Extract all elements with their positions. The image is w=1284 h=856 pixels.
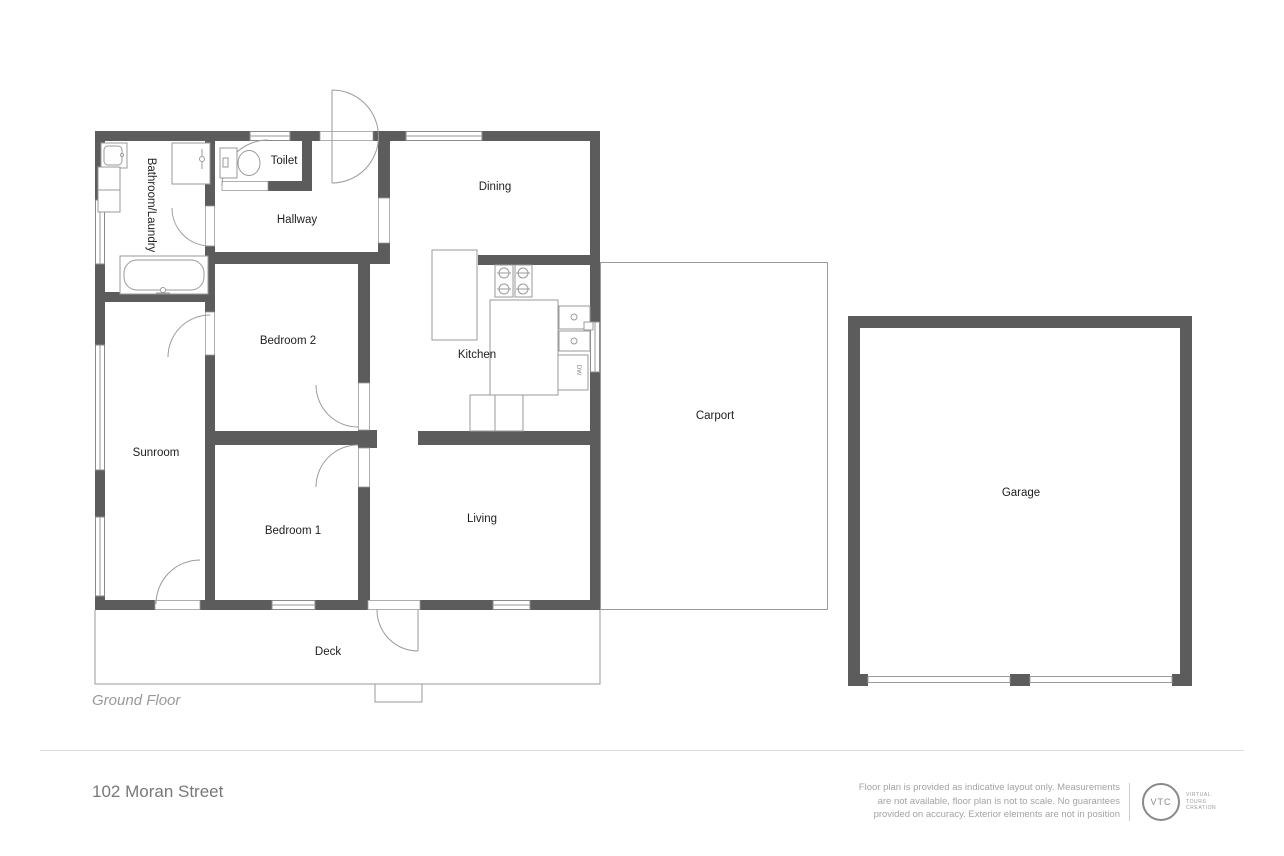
vtc-logo: VTC VIRTUAL TOURS CREATION (1142, 783, 1252, 823)
vtc-logo-name-line-3: CREATION (1186, 805, 1216, 812)
deck-step (375, 684, 422, 702)
toilet-fixture (220, 148, 260, 178)
room-label-bathroom-laundry: Bathroom/Laundry (145, 158, 157, 253)
floor-label: Ground Floor (92, 692, 180, 709)
room-label-living: Living (467, 513, 497, 525)
carport-outline (601, 263, 828, 610)
room-label-hallway: Hallway (277, 214, 317, 226)
shower (172, 143, 210, 184)
garage-walls (848, 316, 1192, 686)
disclaimer-text: Floor plan is provided as indicative lay… (859, 781, 1120, 822)
vtc-logo-circle: VTC (1142, 783, 1180, 821)
bathtub (120, 256, 208, 294)
dishwasher-label: DW (575, 365, 582, 377)
dishwasher: DW (558, 355, 588, 390)
pantry (432, 250, 477, 340)
kitchen-bench (490, 300, 558, 395)
laundry-bench (98, 167, 120, 212)
address-title: 102 Moran Street (92, 782, 223, 802)
garage-door-left (868, 677, 1010, 683)
kitchen-fixtures: DW (432, 250, 593, 431)
floor-plan-drawing: DW (0, 0, 1284, 856)
room-label-bedroom-2: Bedroom 2 (260, 335, 316, 347)
vtc-logo-name: VIRTUAL TOURS CREATION (1186, 792, 1216, 812)
kitchen-sink (559, 306, 593, 351)
garage-door-right (1030, 677, 1172, 683)
room-label-dining: Dining (479, 181, 512, 193)
floor-plan-page: DW Bathroom/LaundryToiletHallwayDiningBe… (0, 0, 1284, 856)
room-label-sunroom: Sunroom (133, 447, 180, 459)
footer-separator (1129, 783, 1130, 821)
disclaimer-line-3: provided on accuracy. Exterior elements … (859, 808, 1120, 822)
bathroom-fixtures (98, 143, 260, 294)
disclaimer-line-1: Floor plan is provided as indicative lay… (859, 781, 1120, 795)
door-openings (155, 132, 420, 610)
kitchen-counter-left (470, 395, 495, 431)
kitchen-counter-right (495, 395, 523, 431)
footer-divider (40, 750, 1244, 751)
disclaimer-line-2: are not available, floor plan is not to … (859, 795, 1120, 809)
stove (495, 265, 532, 297)
room-label-bedroom-1: Bedroom 1 (265, 525, 321, 537)
bathroom-sink (101, 143, 127, 168)
deck-outline (95, 610, 600, 702)
room-label-carport: Carport (696, 410, 734, 422)
room-label-garage: Garage (1002, 487, 1040, 499)
room-label-toilet: Toilet (271, 155, 298, 167)
room-label-kitchen: Kitchen (458, 349, 496, 361)
room-label-deck: Deck (315, 646, 341, 658)
